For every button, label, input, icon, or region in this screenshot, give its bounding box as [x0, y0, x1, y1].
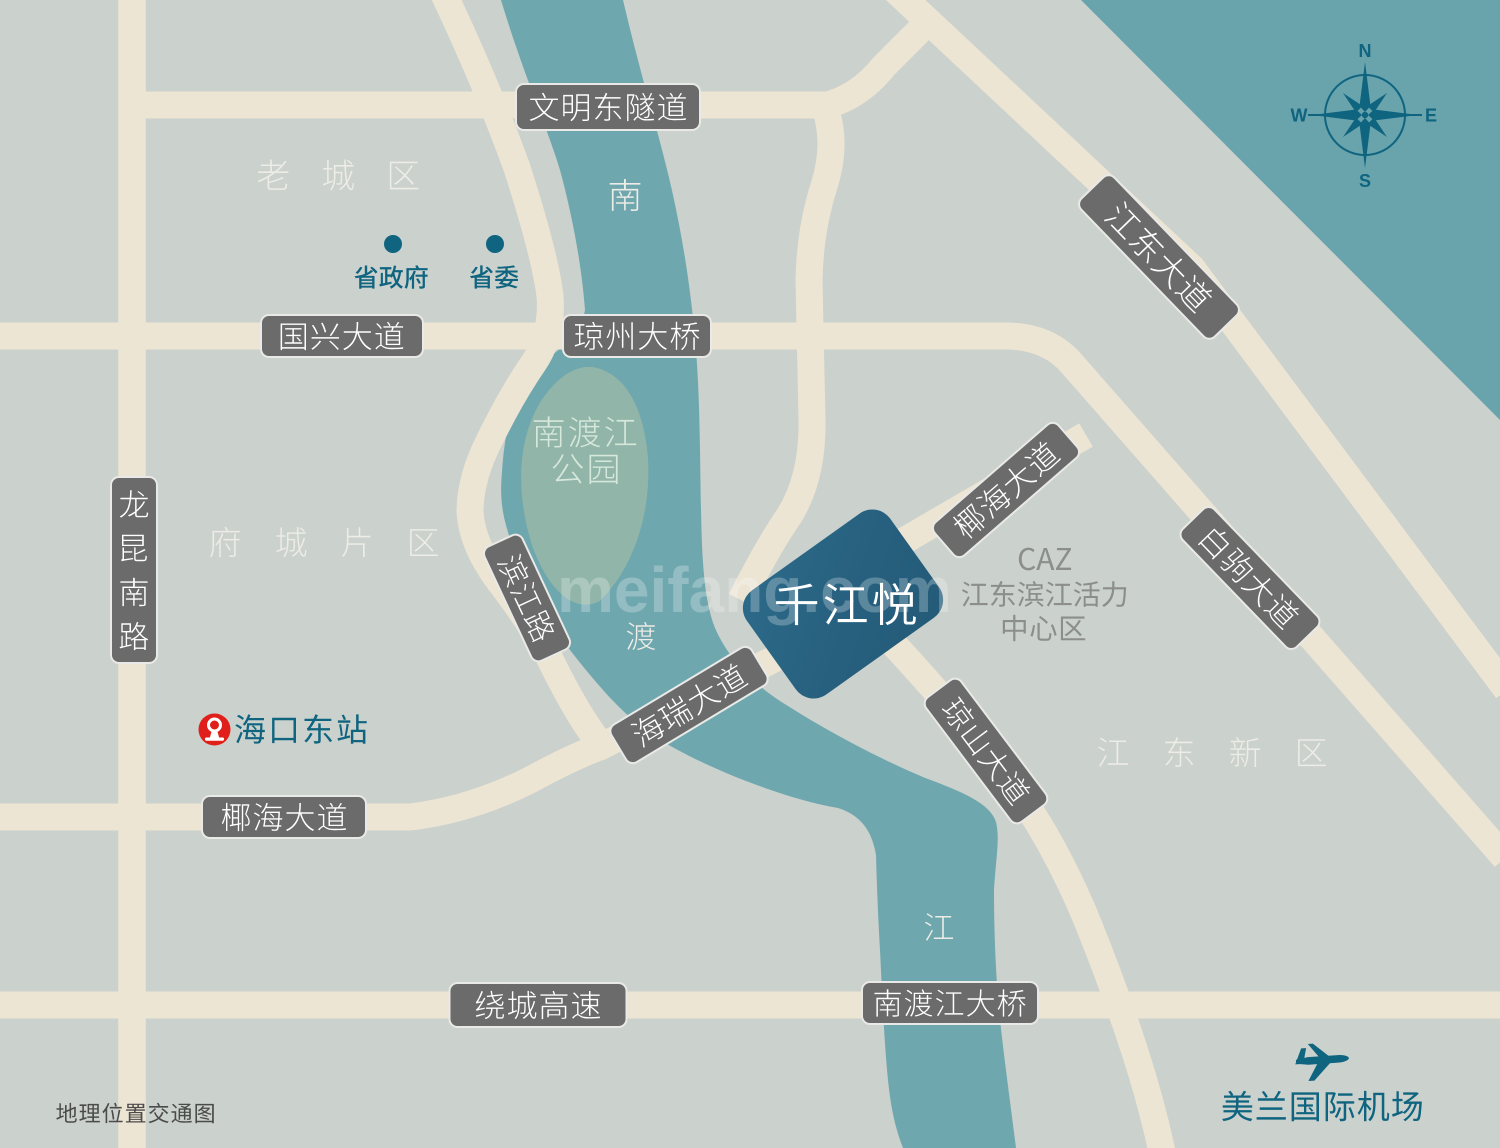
svg-text:S: S [1359, 171, 1371, 191]
svg-text:N: N [1359, 41, 1372, 61]
svg-text:meifang.com: meifang.com [557, 554, 952, 626]
svg-text:E: E [1425, 106, 1437, 126]
svg-text:W: W [1291, 106, 1308, 126]
